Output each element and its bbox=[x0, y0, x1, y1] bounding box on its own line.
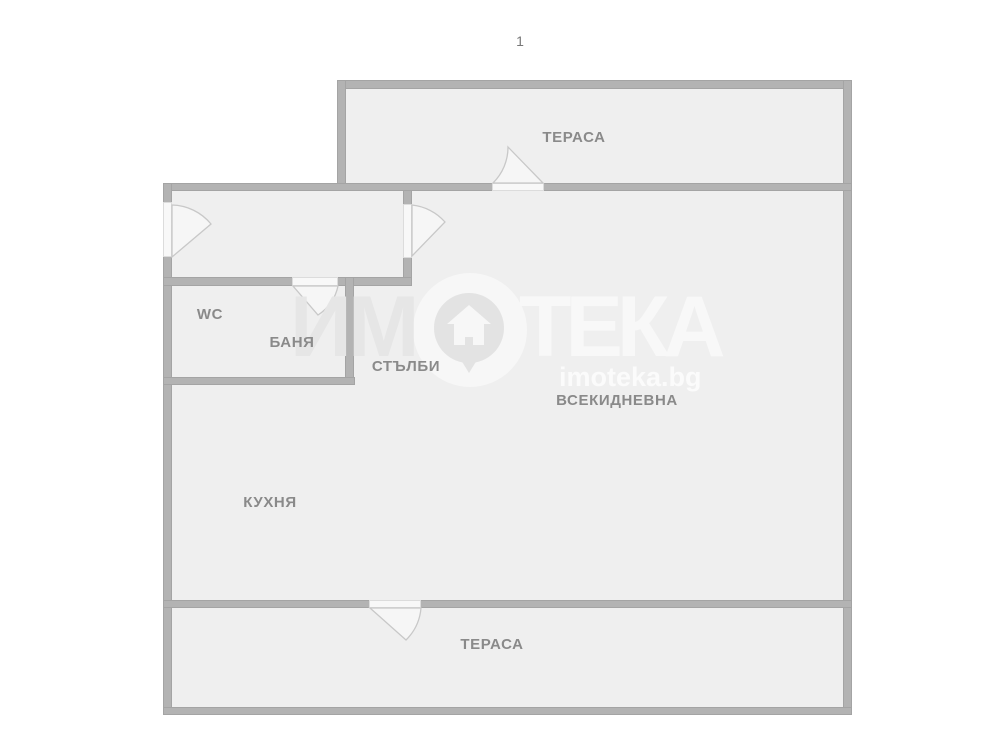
page-number: 1 bbox=[516, 33, 524, 49]
floor-plan-canvas: 1 ИМ ТЕКА imoteka.bg ТЕРАСА W bbox=[0, 0, 1000, 755]
watermark-text-right: ТЕКА bbox=[519, 284, 720, 370]
door-swing-hall-living bbox=[412, 205, 445, 256]
door-swing-entry bbox=[172, 205, 211, 257]
room-label-wc: WC bbox=[197, 306, 223, 323]
door-swing-terrace-top bbox=[493, 147, 543, 183]
room-label-kitchen: КУХНЯ bbox=[243, 494, 296, 511]
room-label-terrace-top: ТЕРАСА bbox=[542, 129, 605, 146]
room-label-bath: БАНЯ bbox=[269, 334, 314, 351]
house-pin-icon bbox=[434, 293, 504, 363]
room-label-terrace-bottom: ТЕРАСА bbox=[460, 636, 523, 653]
watermark-domain: imoteka.bg bbox=[559, 362, 702, 393]
room-label-stairs: СТЪЛБИ bbox=[372, 358, 440, 375]
room-label-living: ВСЕКИДНЕВНА bbox=[556, 392, 678, 409]
house-icon bbox=[434, 293, 504, 363]
door-swing-terrace-bottom bbox=[370, 608, 421, 640]
watermark-pin-tail bbox=[461, 360, 477, 373]
